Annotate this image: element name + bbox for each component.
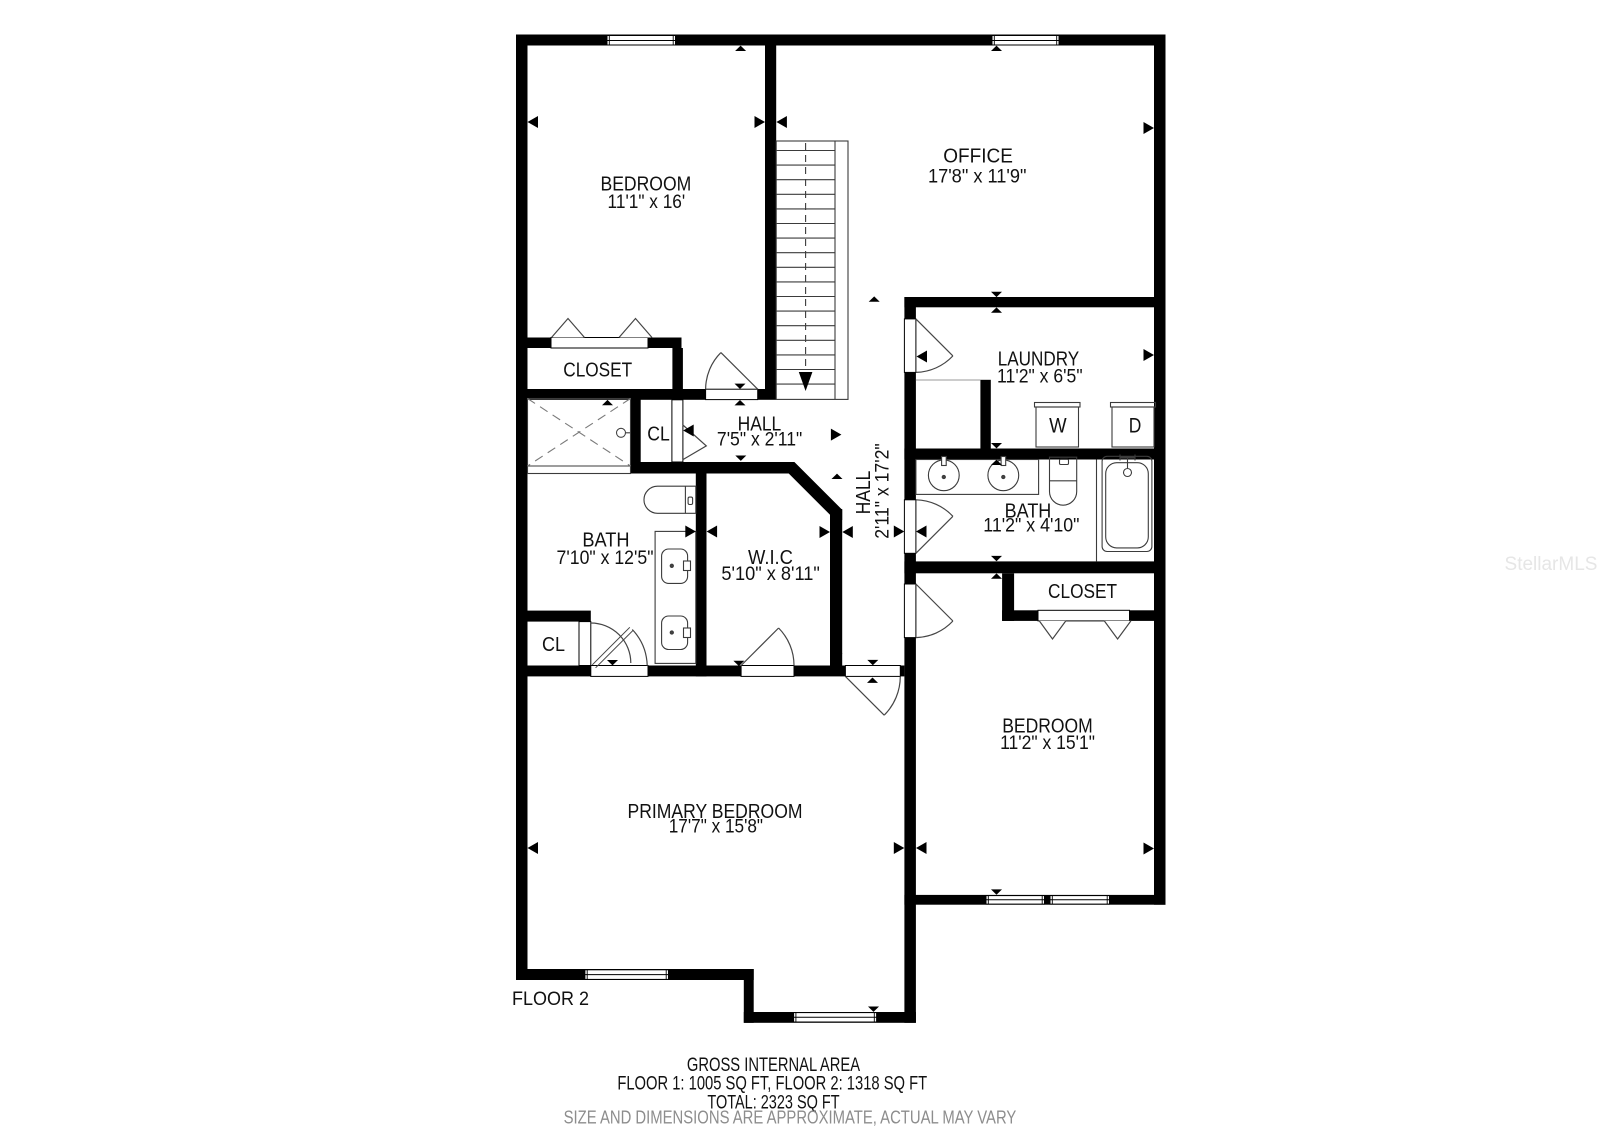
svg-text:SIZE AND DIMENSIONS ARE APPROX: SIZE AND DIMENSIONS ARE APPROXIMATE, ACT… <box>564 1107 1017 1128</box>
svg-text:OFFICE: OFFICE <box>943 145 1013 168</box>
svg-text:CL: CL <box>542 634 565 656</box>
svg-text:7'10" x 12'5": 7'10" x 12'5" <box>557 546 654 568</box>
svg-text:StellarMLS: StellarMLS <box>1505 554 1598 575</box>
svg-text:2'11" x 17'2": 2'11" x 17'2" <box>871 443 893 538</box>
svg-text:17'7" x 15'8": 17'7" x 15'8" <box>669 816 763 837</box>
svg-text:CLOSET: CLOSET <box>1048 580 1117 602</box>
svg-text:W: W <box>1049 414 1067 437</box>
svg-text:11'2" x 15'1": 11'2" x 15'1" <box>1000 731 1095 753</box>
svg-text:D: D <box>1129 415 1142 438</box>
svg-text:11'2" x 6'5": 11'2" x 6'5" <box>997 365 1083 387</box>
svg-text:CL: CL <box>647 423 669 445</box>
svg-text:CLOSET: CLOSET <box>563 358 632 380</box>
svg-text:11'2" x 4'10": 11'2" x 4'10" <box>983 514 1079 536</box>
svg-text:17'8" x 11'9": 17'8" x 11'9" <box>928 165 1027 186</box>
svg-text:11'1" x 16': 11'1" x 16' <box>608 191 686 212</box>
svg-text:7'5" x 2'11": 7'5" x 2'11" <box>717 428 802 450</box>
svg-text:5'10" x 8'11": 5'10" x 8'11" <box>721 563 819 584</box>
svg-text:FLOOR 2: FLOOR 2 <box>512 988 589 1010</box>
